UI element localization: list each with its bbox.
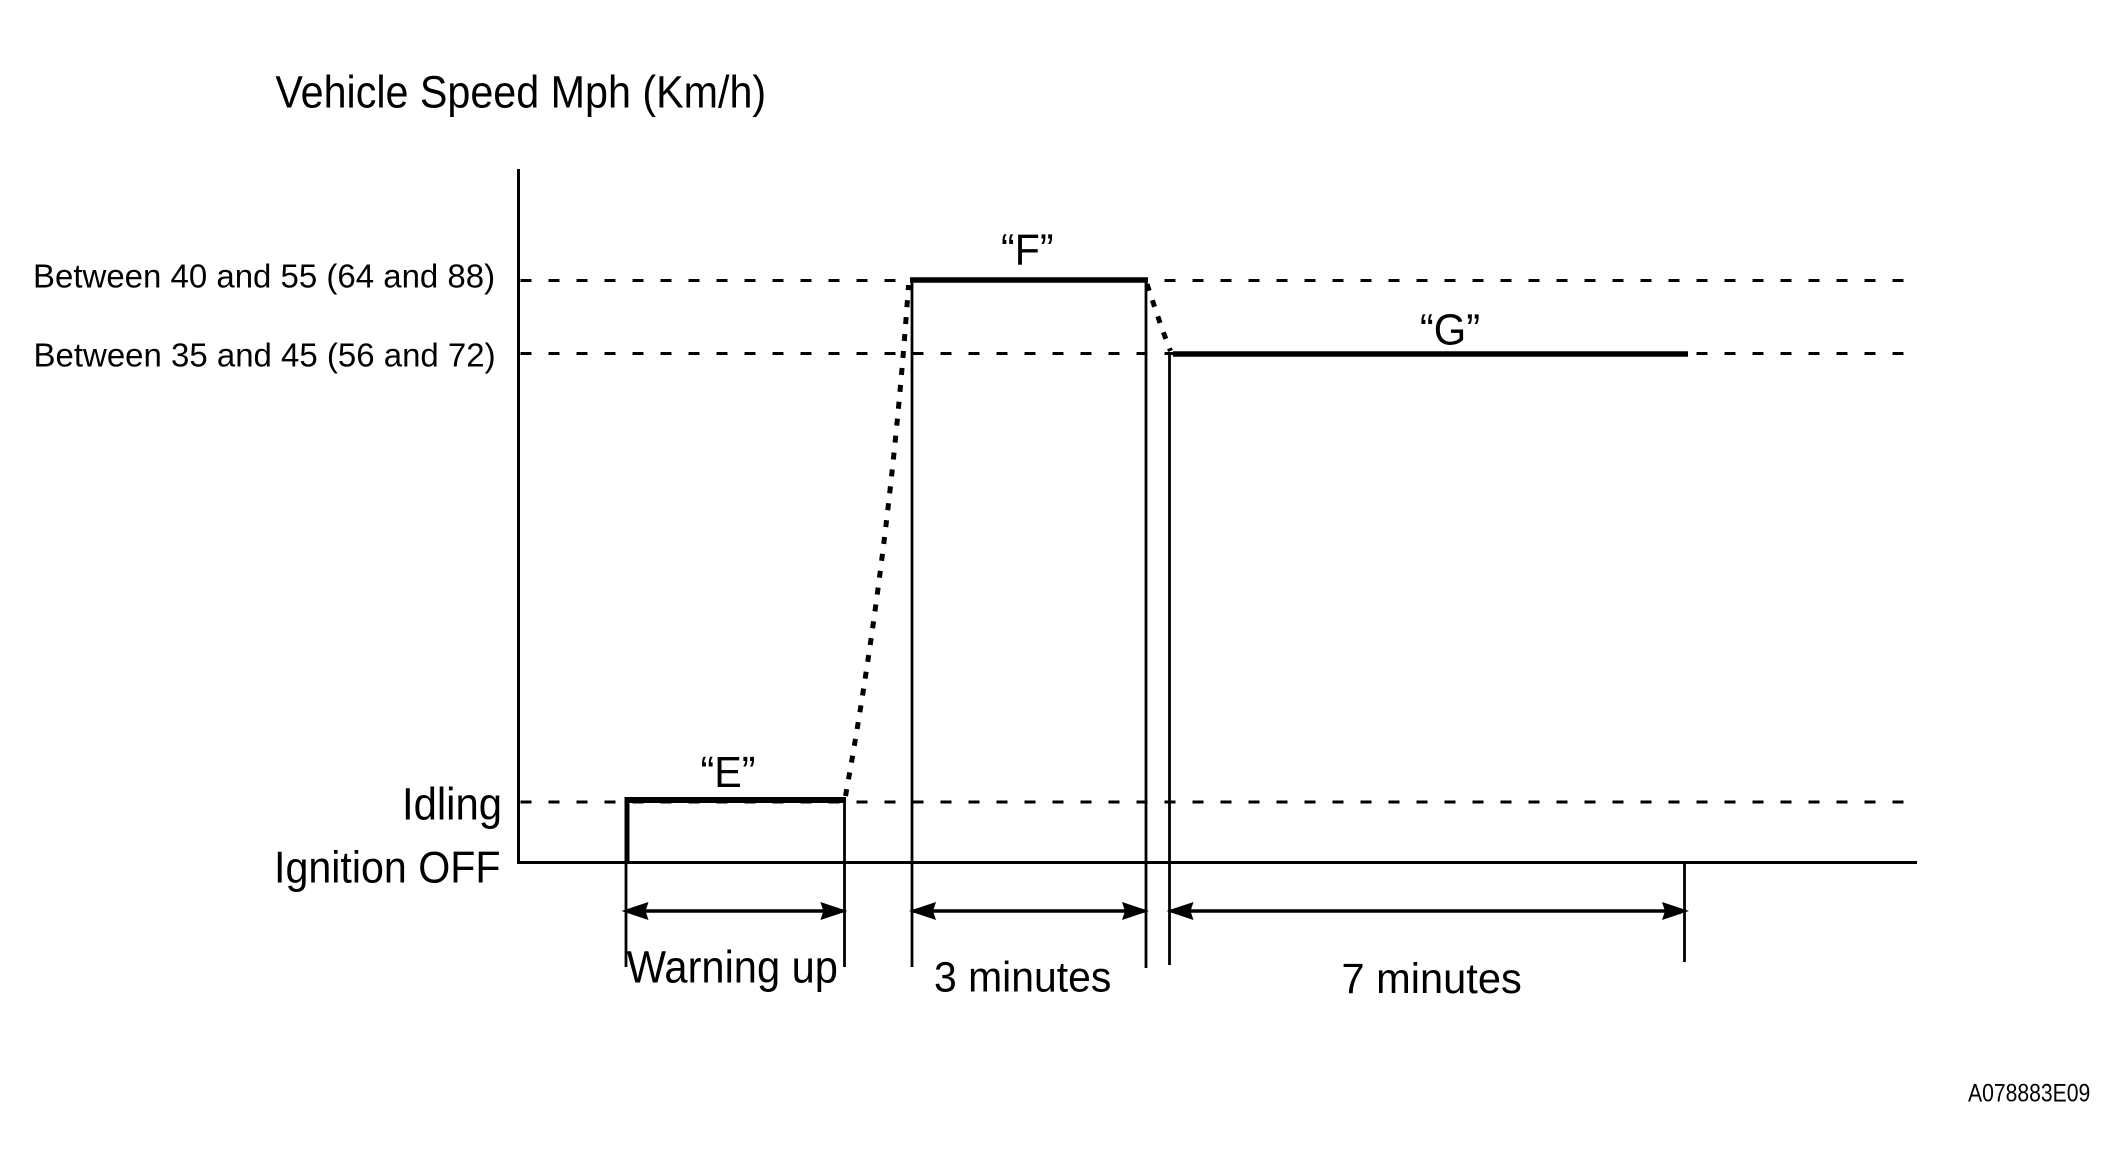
svg-text:7 minutes: 7 minutes <box>1342 955 1522 1002</box>
svg-text:Vehicle Speed Mph (Km/h): Vehicle Speed Mph (Km/h) <box>275 68 766 118</box>
svg-text:3 minutes: 3 minutes <box>934 953 1111 1001</box>
svg-text:Idling: Idling <box>402 779 502 830</box>
svg-text:“E”: “E” <box>700 748 755 796</box>
svg-text:Warning up: Warning up <box>627 943 838 993</box>
svg-text:Between 40 and 55 (64 and 88): Between 40 and 55 (64 and 88) <box>33 258 495 295</box>
svg-text:A078883E09: A078883E09 <box>1968 1079 2090 1107</box>
svg-text:Ignition OFF: Ignition OFF <box>274 843 500 893</box>
svg-text:“G”: “G” <box>1420 306 1480 355</box>
svg-text:Between 35 and 45 (56 and 72): Between 35 and 45 (56 and 72) <box>34 337 496 374</box>
svg-text:“F”: “F” <box>1001 225 1053 273</box>
